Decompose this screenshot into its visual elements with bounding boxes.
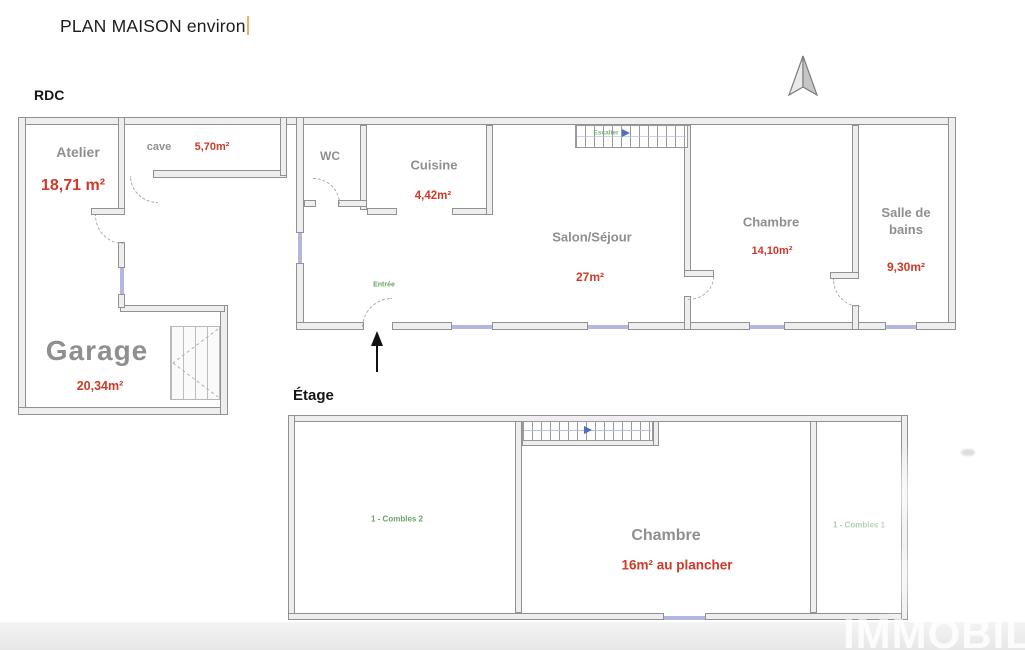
door-arc [688, 277, 714, 300]
wall [492, 322, 588, 330]
page-title[interactable]: PLAN MAISON environ [60, 16, 249, 37]
wall [688, 322, 750, 330]
entrance-label: Entrée [373, 282, 395, 289]
room-area-chambre-etage: 16m² au plancher [621, 558, 732, 573]
room-label-combles2: 1 - Combles 2 [371, 515, 423, 524]
room-area-chambre-rdc: 14,10m² [752, 245, 793, 257]
wall [684, 296, 691, 330]
door-arc [95, 215, 123, 244]
wall [784, 322, 854, 330]
window [886, 325, 916, 329]
wall [852, 125, 859, 275]
room-area-garage: 20,34m² [77, 379, 124, 393]
window [452, 325, 492, 329]
floor-plan-page: PLAN MAISON environ RDC Étage [0, 0, 1025, 650]
window [664, 616, 705, 620]
room-label-wc: WC [320, 149, 340, 163]
wall [338, 200, 367, 207]
window [750, 325, 784, 329]
floor-label-etage: Étage [293, 387, 334, 404]
north-arrow-icon [787, 55, 819, 97]
room-area-atelier: 18,71 m² [41, 177, 105, 195]
wall [288, 613, 664, 620]
door-arc [833, 279, 860, 307]
wall [486, 125, 493, 215]
wall [18, 117, 956, 125]
room-label-salle-de-bains: Salle de bains [868, 205, 944, 239]
door-arc [313, 178, 340, 204]
wall [118, 242, 125, 268]
room-label-salon: Salon/Séjour [552, 230, 631, 245]
room-label-garage: Garage [46, 335, 149, 367]
watermark-text: IMMOBIL [843, 610, 1025, 650]
floor-label-rdc: RDC [34, 87, 64, 103]
room-label-chambre-rdc: Chambre [743, 215, 799, 230]
wall [367, 208, 397, 215]
wall [296, 322, 364, 330]
stair-direction-arrow-icon [584, 426, 592, 434]
wall [18, 117, 26, 415]
wall [296, 263, 304, 330]
wall [628, 322, 688, 330]
room-label-cuisine: Cuisine [411, 158, 458, 173]
text-cursor [247, 16, 250, 35]
wall [852, 305, 859, 330]
staircase-garage-cut-lines [170, 326, 220, 400]
wall [684, 270, 714, 277]
wall [118, 117, 125, 212]
wall [515, 421, 522, 613]
wall [18, 407, 228, 415]
page-title-text: PLAN MAISON environ [60, 16, 246, 36]
staircase-label: Escalier [594, 130, 619, 137]
wall [280, 117, 287, 176]
window [298, 233, 302, 263]
window [120, 268, 124, 294]
room-label-cave: cave [147, 141, 171, 153]
wall [653, 421, 659, 446]
wall [810, 421, 817, 613]
room-area-cuisine: 4,42m² [415, 190, 451, 202]
wall [830, 272, 859, 279]
wall [91, 208, 125, 215]
door-arc [130, 176, 158, 203]
wall [120, 305, 225, 312]
room-label-chambre-etage: Chambre [631, 527, 700, 545]
door-arc [362, 298, 392, 328]
wall [392, 322, 452, 330]
room-area-salon: 27m² [576, 270, 604, 284]
room-label-atelier: Atelier [56, 144, 100, 160]
window [588, 325, 628, 329]
room-area-salle-de-bains: 9,30m² [887, 260, 925, 274]
wall [916, 322, 956, 330]
wall [296, 117, 304, 233]
wall [118, 294, 125, 308]
wall [360, 125, 367, 210]
wall [288, 415, 295, 620]
room-area-cave: 5,70m² [195, 141, 230, 153]
wall [153, 170, 287, 178]
entrance-arrow-icon [369, 331, 385, 373]
wall [220, 305, 228, 415]
stair-direction-arrow-icon [622, 129, 630, 137]
wall [948, 117, 956, 330]
